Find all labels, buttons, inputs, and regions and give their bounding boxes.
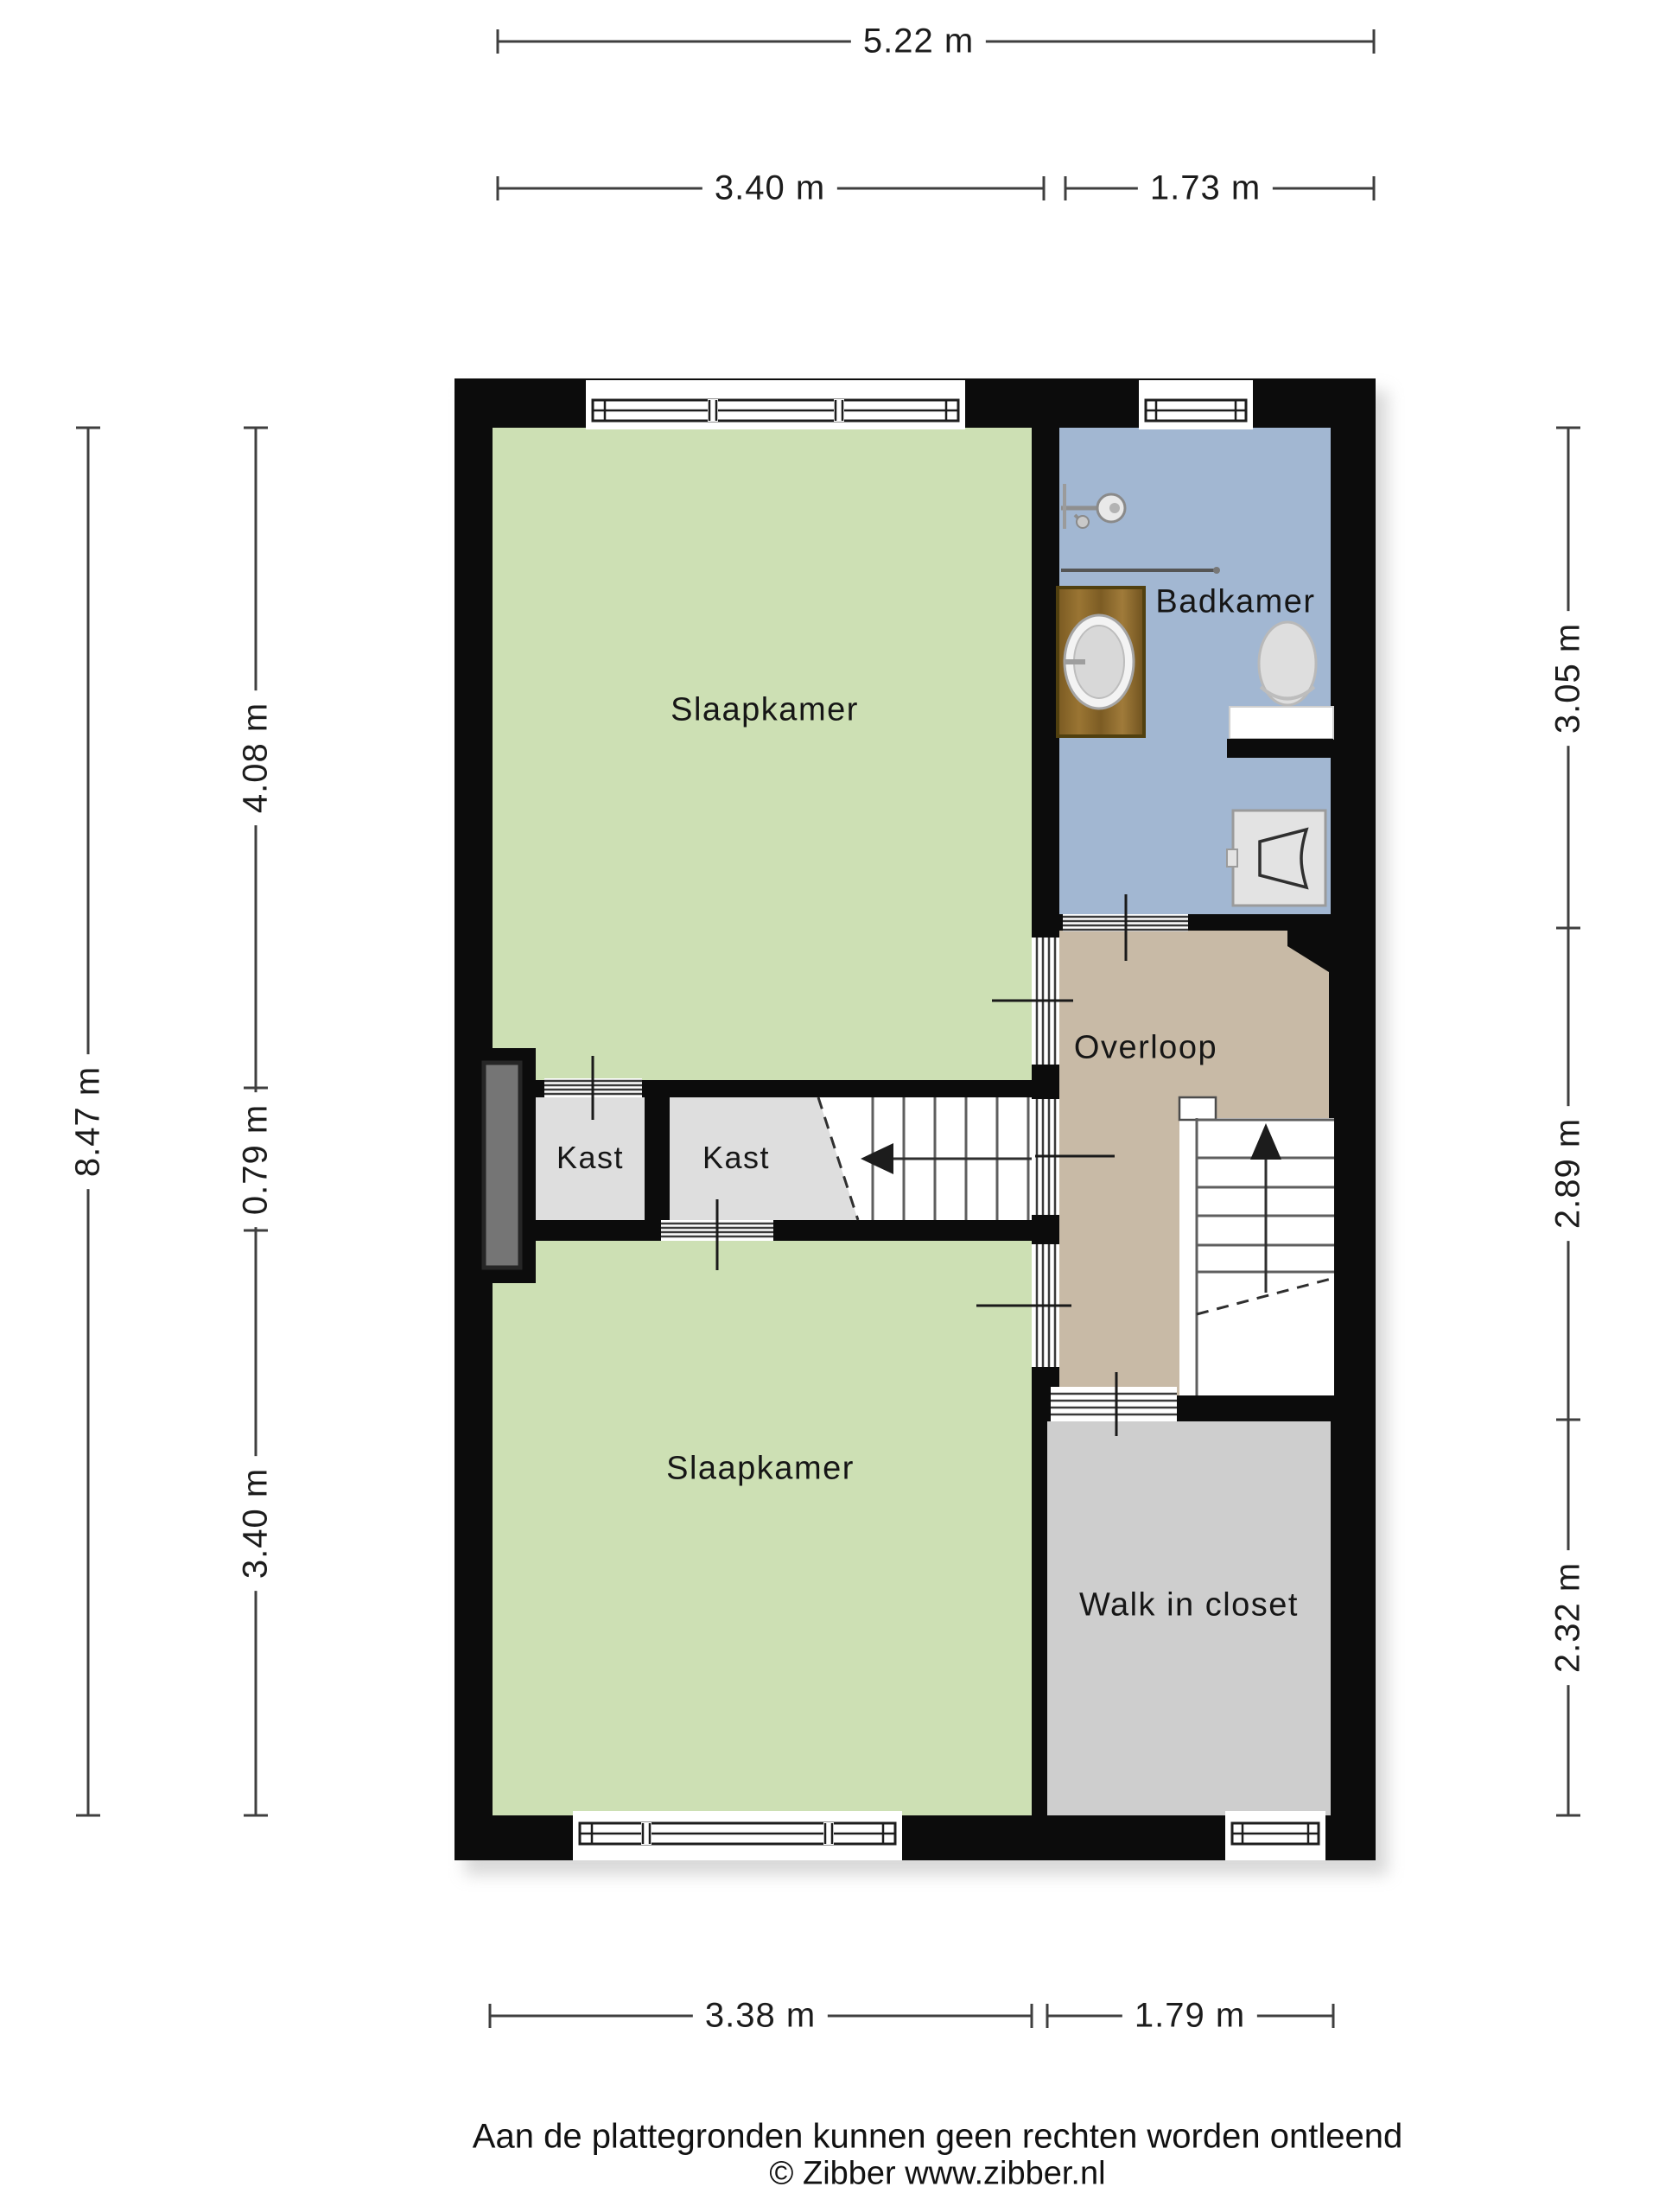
room-label-kast-b: Kast xyxy=(702,1140,770,1176)
dim-left-total: 8.47 m xyxy=(69,1054,108,1189)
dim-top-left: 3.40 m xyxy=(702,169,837,208)
room-label-kast-a: Kast xyxy=(556,1140,624,1176)
stairs-up-icon xyxy=(1179,1097,1334,1395)
room-label-bedroom-bottom: Slaapkamer xyxy=(666,1451,855,1488)
room-label-walk-in-closet: Walk in closet xyxy=(1079,1587,1299,1624)
room-label-bathroom: Badkamer xyxy=(1155,584,1315,621)
dim-right-seg1: 3.05 m xyxy=(1549,611,1588,746)
room-label-bedroom-top: Slaapkamer xyxy=(671,692,859,729)
room-label-landing: Overloop xyxy=(1074,1030,1217,1067)
window-bedroom-bottom xyxy=(573,1811,902,1860)
floorplan-page: Slaapkamer Badkamer Overloop Kast Kast S… xyxy=(0,0,1659,2212)
dim-right-seg3: 2.32 m xyxy=(1549,1550,1588,1685)
dim-top-right: 1.73 m xyxy=(1138,169,1273,208)
window-bathroom xyxy=(1139,380,1253,429)
window-walk-in-closet xyxy=(1225,1811,1325,1860)
dim-left-seg3: 3.40 m xyxy=(237,1456,276,1591)
window-bedroom-top xyxy=(586,380,965,429)
dim-left-seg2: 0.79 m xyxy=(237,1092,276,1227)
footer-disclaimer: Aan de plattegronden kunnen geen rechten… xyxy=(473,2118,1402,2157)
dim-top-total: 5.22 m xyxy=(851,22,986,61)
dim-left-seg1: 4.08 m xyxy=(237,690,276,825)
footer-copyright: © Zibber www.zibber.nl xyxy=(769,2156,1105,2193)
dim-bottom-left: 3.38 m xyxy=(693,1997,828,2036)
dim-right-seg2: 2.89 m xyxy=(1549,1106,1588,1241)
room-bedroom-bottom xyxy=(493,1241,1032,1815)
sink-vanity-icon xyxy=(1058,588,1144,736)
washing-machine-icon xyxy=(1227,810,1325,906)
chimney-icon xyxy=(484,1048,536,1283)
dim-bottom-right: 1.79 m xyxy=(1122,1997,1257,2036)
room-bedroom-top xyxy=(493,428,1032,1080)
